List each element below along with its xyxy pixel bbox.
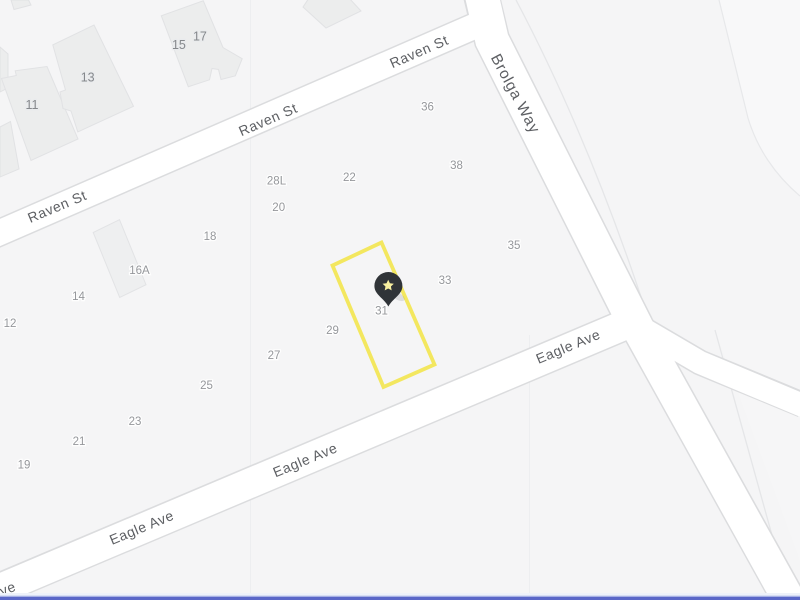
svg-text:17: 17 — [193, 30, 207, 44]
svg-text:18: 18 — [204, 231, 217, 243]
svg-text:22: 22 — [343, 172, 356, 184]
svg-text:29: 29 — [326, 325, 339, 337]
svg-text:16A: 16A — [129, 265, 150, 277]
svg-text:27: 27 — [268, 350, 281, 362]
svg-text:23: 23 — [129, 416, 142, 428]
svg-text:38: 38 — [450, 160, 463, 172]
svg-text:35: 35 — [508, 240, 521, 252]
svg-text:33: 33 — [439, 275, 452, 287]
svg-text:11: 11 — [26, 98, 39, 112]
svg-text:12: 12 — [4, 318, 17, 330]
svg-text:36: 36 — [421, 102, 434, 114]
svg-text:14: 14 — [72, 291, 85, 303]
svg-text:31: 31 — [375, 306, 388, 318]
svg-text:25: 25 — [200, 380, 213, 392]
svg-text:15: 15 — [172, 38, 186, 52]
svg-text:21: 21 — [73, 436, 86, 448]
svg-text:13: 13 — [81, 70, 95, 84]
svg-text:19: 19 — [18, 460, 31, 472]
svg-text:28L: 28L — [267, 176, 287, 188]
svg-text:20: 20 — [272, 202, 285, 214]
